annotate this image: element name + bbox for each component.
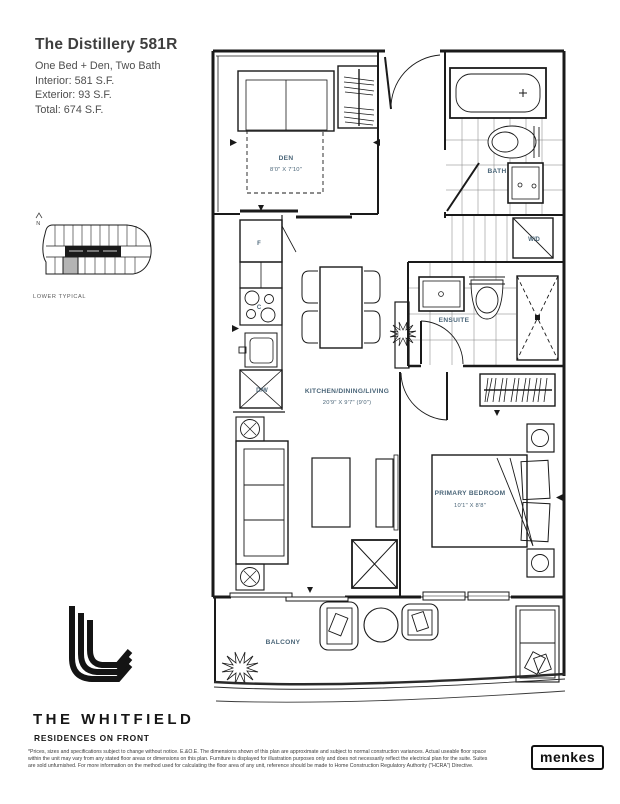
plant-icon: [390, 322, 416, 346]
cushion: [329, 613, 348, 635]
entry-door: [385, 55, 440, 109]
disclaimer-line: *Prices, sizes and specifications subjec…: [28, 749, 528, 756]
dishwasher-label: D/W: [256, 388, 268, 394]
ensuite-label: ENSUITE: [439, 317, 470, 324]
den-label: DEN: [279, 155, 294, 162]
brand-tagline: RESIDENCES ON FRONT: [34, 733, 150, 743]
coffee-table: [312, 458, 350, 527]
bath-toilet: [488, 126, 539, 158]
ensuite-door: [421, 321, 463, 364]
disclaimer: *Prices, sizes and specifications subjec…: [28, 749, 528, 771]
kitchen-label: KITCHEN/DINING/LIVING: [305, 388, 389, 395]
balcony-lounge: [516, 606, 559, 682]
tv-console: [376, 455, 398, 530]
entry-closet: [338, 66, 378, 128]
brand-name: THE WHITFIELD: [33, 711, 194, 728]
balcony-plant-icon: [222, 652, 258, 684]
ensuite-vanity: [419, 277, 464, 311]
primary-bed: [432, 455, 550, 547]
bathtub: [450, 68, 546, 118]
den-boundary-dashed: [247, 131, 323, 193]
nightstand-top: [527, 424, 554, 452]
ensuite-toilet: [469, 277, 505, 319]
den-sliding-door: [240, 211, 352, 217]
den-dims: 8'0" X 7'10": [270, 167, 302, 173]
nightstand-bottom: [527, 549, 554, 577]
bath-vanity: [508, 163, 543, 203]
bath-label: BATH: [487, 168, 506, 175]
balcony-slider: [230, 593, 348, 601]
disclaimer-line: within the unit may vary from any stated…: [28, 756, 528, 763]
washer-dryer-label: W/D: [528, 237, 540, 243]
kitchen-fridge: [240, 220, 296, 262]
balcony-label: BALCONY: [266, 639, 301, 646]
den-bed: [238, 71, 334, 131]
kitchen-dims: 20'9" X 9'7" (9'0"): [323, 400, 371, 406]
kitchen-sink: [239, 333, 277, 367]
balcony-railing: [214, 674, 565, 702]
cushion: [412, 612, 429, 632]
balcony-chair-left: [320, 602, 358, 650]
disclaimer-line: are sold unfurnished. For more informati…: [28, 763, 528, 770]
fridge-label: F: [257, 241, 261, 247]
bedroom-windows: [423, 592, 509, 600]
builder-logo: menkes: [531, 745, 604, 770]
dining-table: [320, 267, 362, 348]
bedroom-label: PRIMARY BEDROOM: [435, 490, 506, 497]
balcony-chair-right: [402, 604, 438, 640]
whitfield-logo-icon: [52, 602, 144, 702]
pillow: [521, 460, 550, 499]
side-table-top: [236, 417, 264, 441]
dining-chairs: [302, 271, 380, 343]
column-shaft: [352, 540, 397, 588]
bedroom-dims: 10'1" X 8'8": [454, 503, 486, 509]
cooktop-label: C: [257, 305, 262, 311]
bedroom-door: [401, 372, 447, 420]
laundry-tile-grid: [452, 216, 507, 261]
sofa: [236, 441, 288, 564]
kitchen-cabinet: [240, 262, 282, 288]
bath-door: [447, 163, 479, 211]
tv-icon: [394, 455, 398, 530]
hall-cabinet: [390, 302, 416, 368]
pillow: [521, 502, 550, 541]
shower-drain-icon: [535, 315, 540, 320]
bedroom-closet: [480, 374, 555, 406]
shower: [517, 276, 558, 360]
balcony-table: [364, 608, 398, 642]
side-table-bottom: [236, 564, 264, 590]
